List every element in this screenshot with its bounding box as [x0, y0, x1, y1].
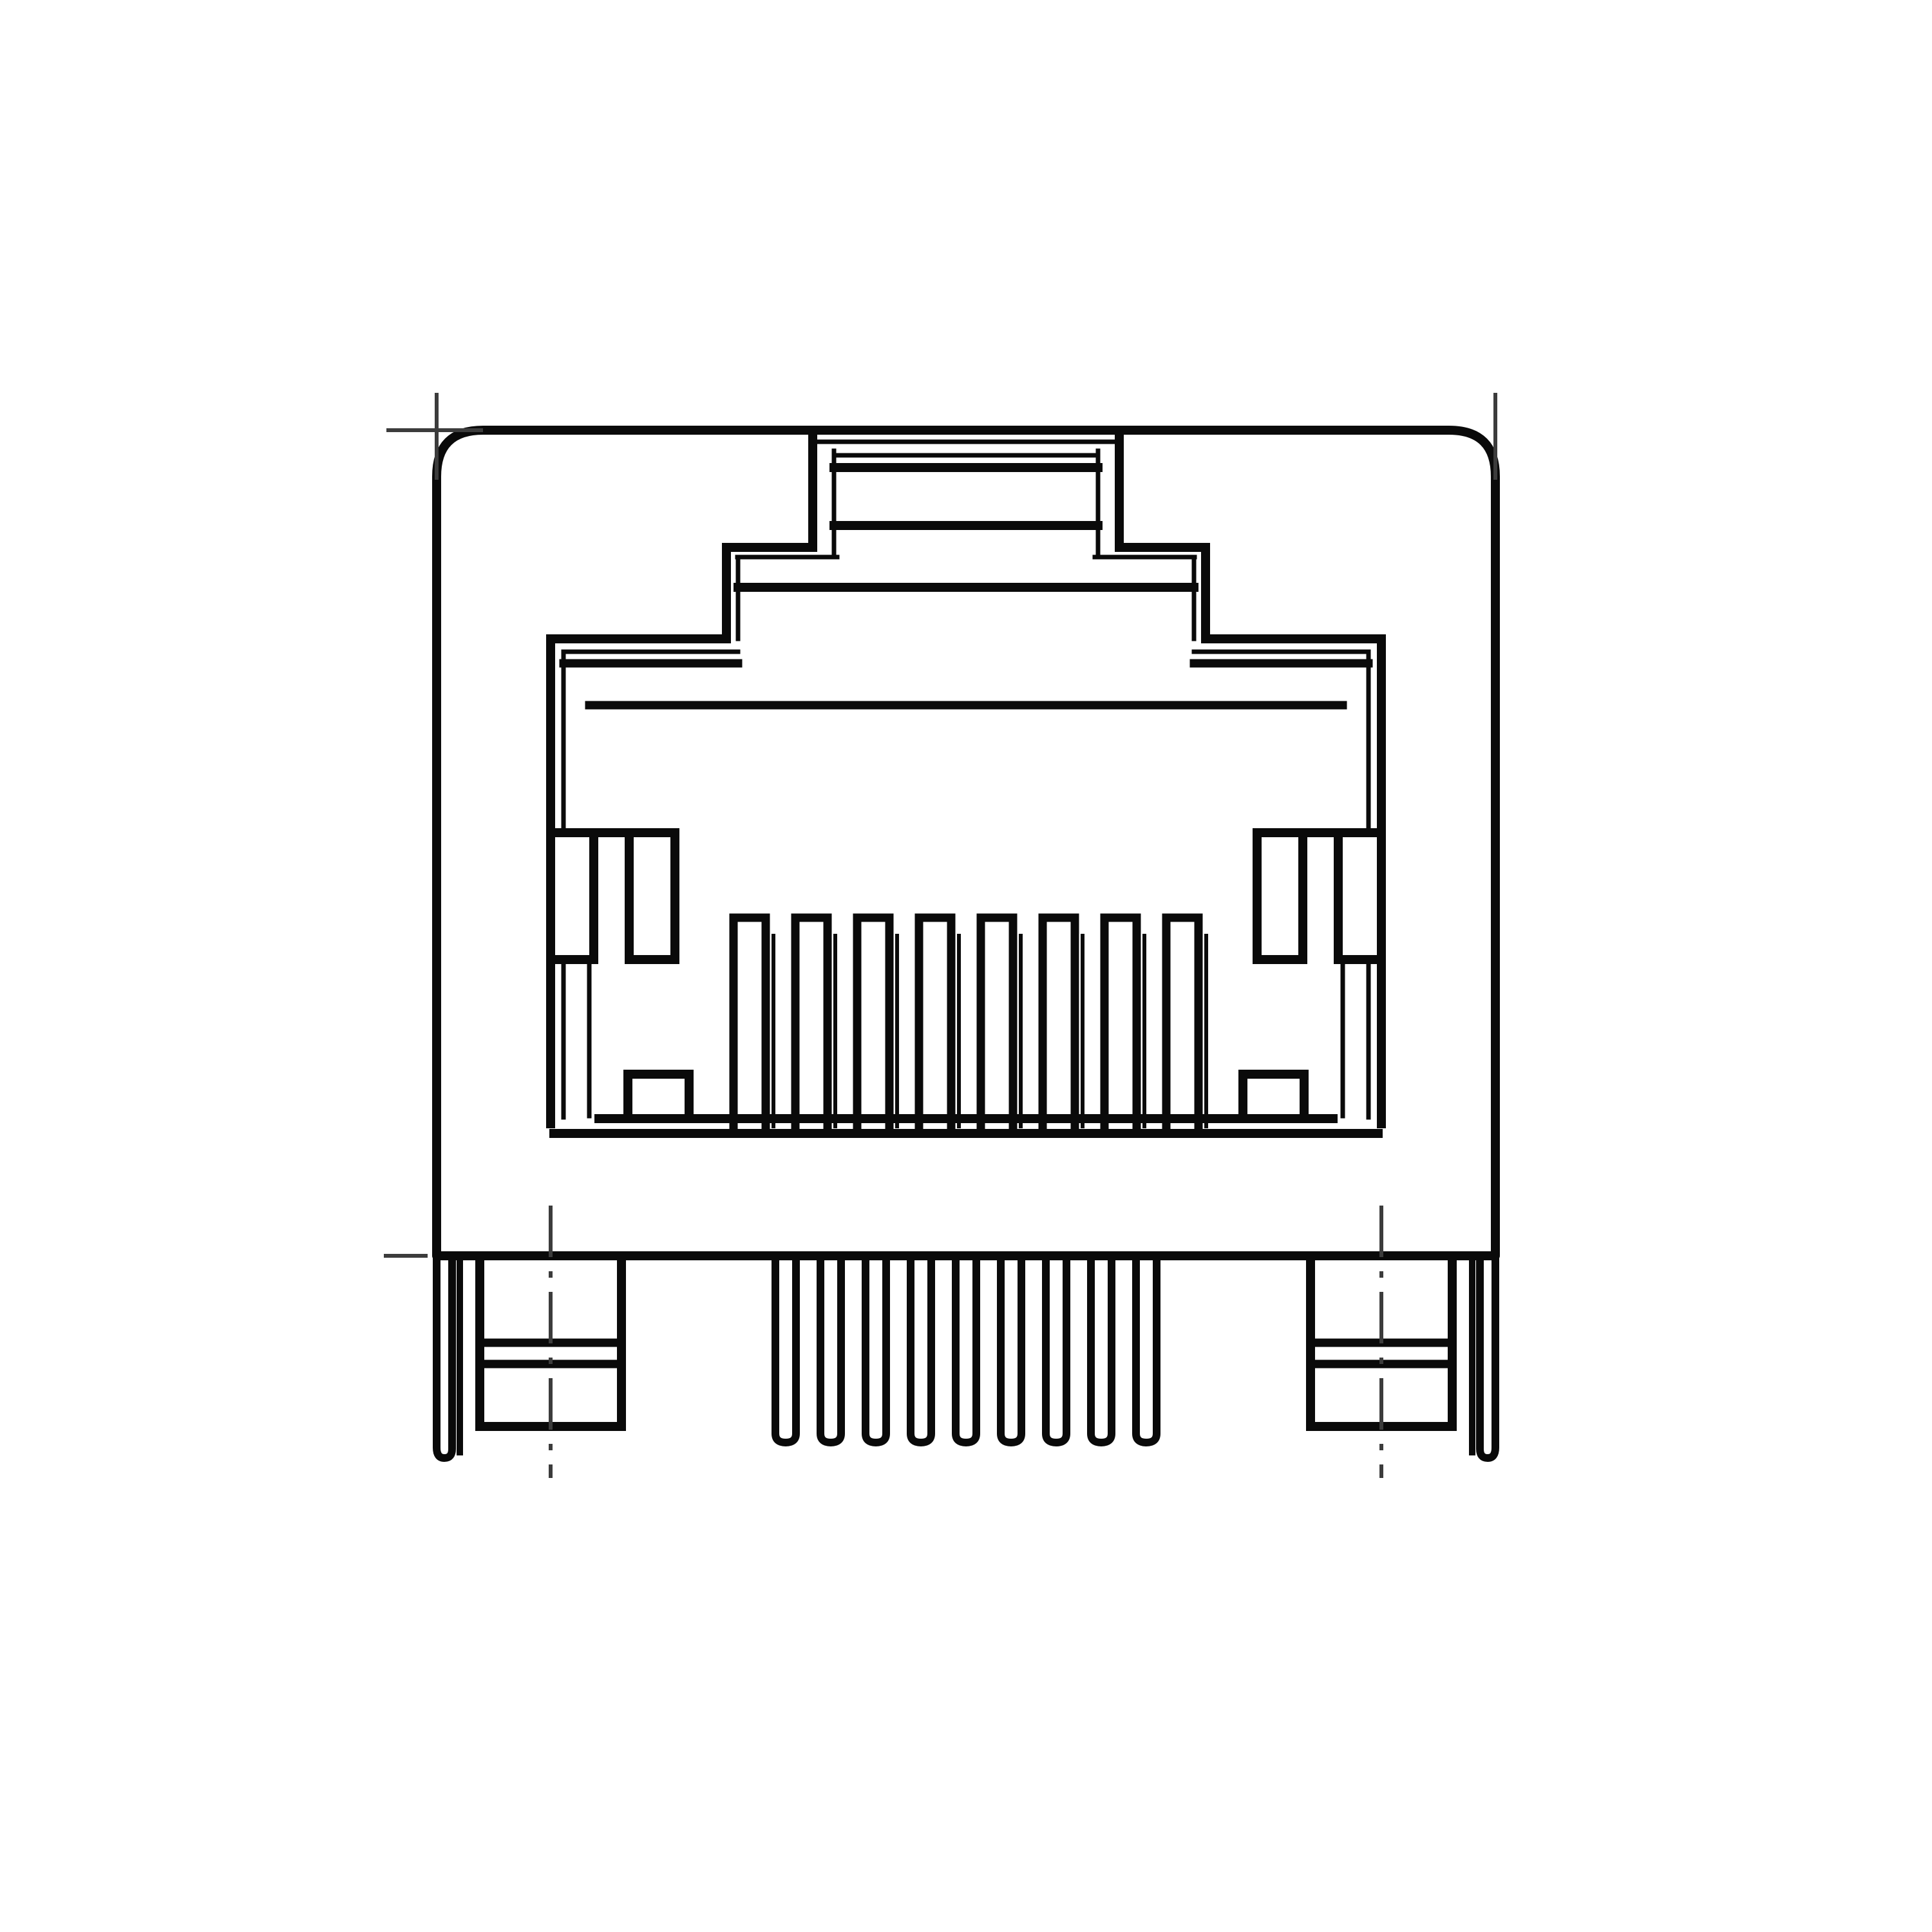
background: [0, 0, 1932, 1932]
drawing-canvas: [0, 0, 1932, 1932]
rj45-front-view-diagram: [0, 0, 1932, 1932]
